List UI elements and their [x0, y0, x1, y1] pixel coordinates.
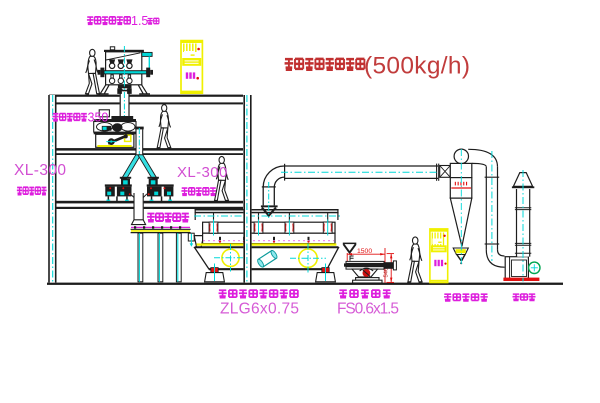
svg-text:(500kg/h): (500kg/h)	[364, 53, 470, 80]
svg-text:1500: 1500	[357, 248, 372, 255]
svg-text:FS0.6x1.5: FS0.6x1.5	[337, 301, 399, 318]
svg-text:350: 350	[88, 111, 109, 125]
svg-text:ZLG6x0.75: ZLG6x0.75	[220, 301, 299, 318]
svg-text:1.5: 1.5	[131, 14, 148, 28]
svg-text:XL-300: XL-300	[14, 162, 66, 179]
svg-text:XL-300: XL-300	[177, 164, 228, 181]
